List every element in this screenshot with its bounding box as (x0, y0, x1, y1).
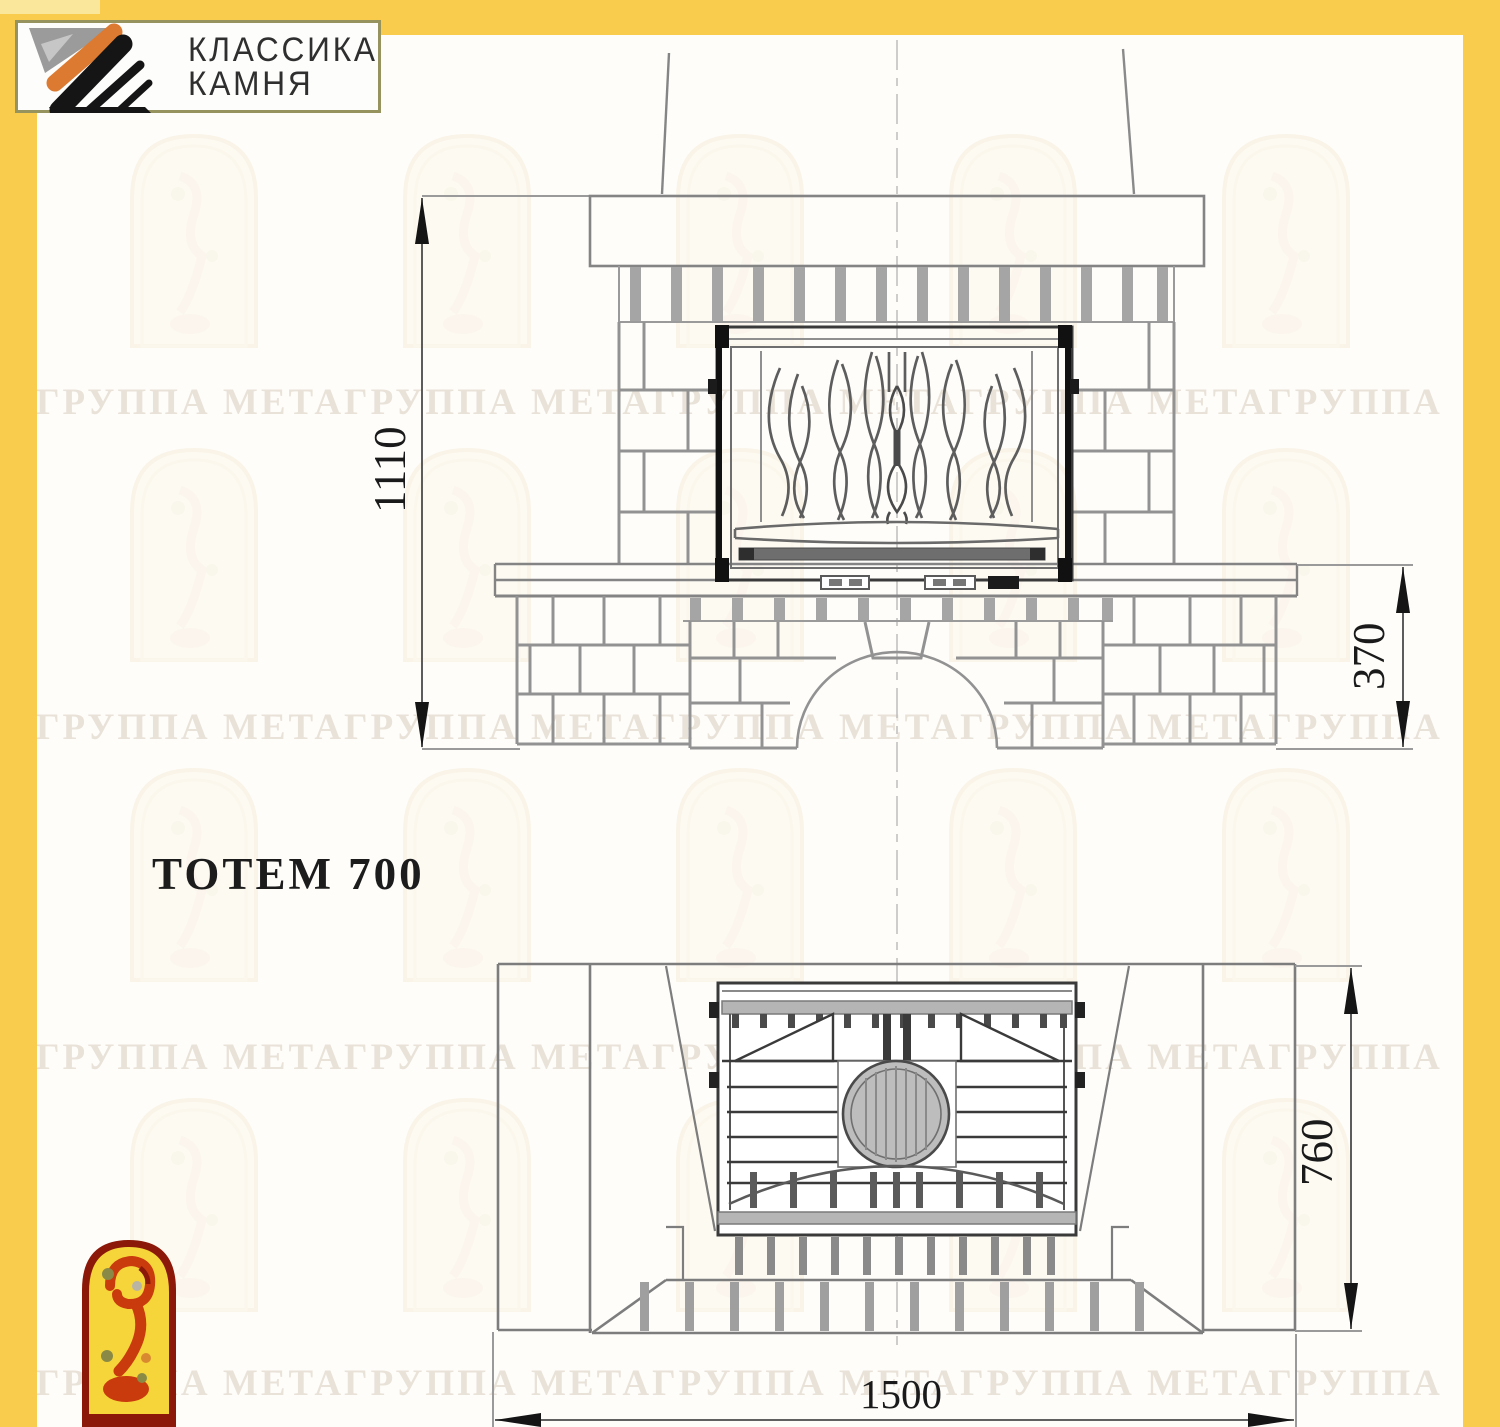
svg-text:760: 760 (1292, 1119, 1342, 1187)
svg-text:370: 370 (1344, 623, 1394, 691)
svg-text:1110: 1110 (365, 426, 415, 513)
svg-text:1500: 1500 (860, 1371, 942, 1417)
